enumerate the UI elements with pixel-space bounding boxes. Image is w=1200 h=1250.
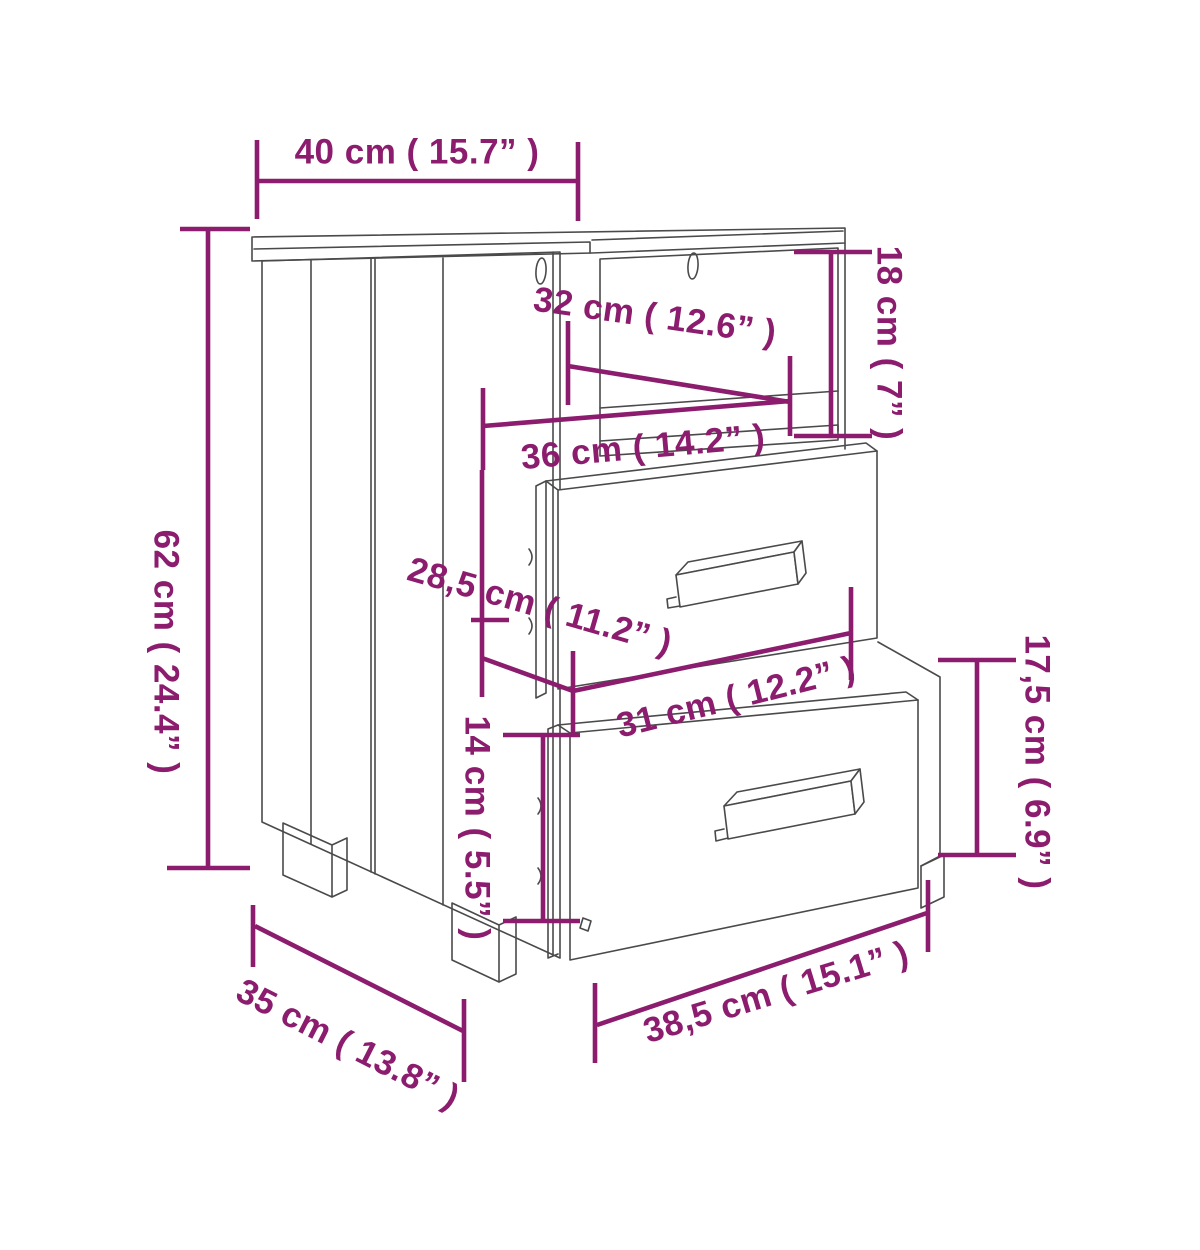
dimension-shelf-width: 36 cm ( 14.2” ) <box>483 388 790 477</box>
dimension-niche-height: 18 cm ( 7” ) <box>794 246 909 441</box>
lower-drawer <box>538 692 918 960</box>
dimension-shelf-width-label: 36 cm ( 14.2” ) <box>519 417 766 477</box>
dimension-overall-height-label: 62 cm ( 24.4” ) <box>147 530 186 775</box>
dimension-leg-height: 14 cm ( 5.5” ) <box>458 716 581 941</box>
dimension-depth: 35 cm ( 13.8” ) <box>230 905 466 1117</box>
top-panel-outline <box>252 228 845 261</box>
lower-drawer-grain-marks <box>538 798 541 884</box>
rear-left-leg <box>283 823 347 897</box>
dimension-lines <box>503 735 580 921</box>
dimension-drawer-front-height-label: 17,5 cm ( 6.9” ) <box>1018 634 1057 889</box>
dimension-overall-height: 62 cm ( 24.4” ) <box>147 229 251 868</box>
dimension-annotations: 40 cm ( 15.7” ) 18 cm ( 7” ) 32 cm ( 12.… <box>147 133 1057 1117</box>
keyhole-slot-right <box>687 253 699 280</box>
dimension-leg-height-label: 14 cm ( 5.5” ) <box>458 716 497 941</box>
cabinet-top-panel <box>252 228 845 261</box>
bedside-cabinet-dimension-diagram: 40 cm ( 15.7” ) 18 cm ( 7” ) 32 cm ( 12.… <box>0 0 1200 1250</box>
dimension-front-width-label: 38,5 cm ( 15.1” ) <box>639 933 913 1051</box>
dimension-top-width-label: 40 cm ( 15.7” ) <box>295 133 540 172</box>
dimension-niche-height-label: 18 cm ( 7” ) <box>870 246 909 441</box>
dimension-top-width: 40 cm ( 15.7” ) <box>257 133 578 222</box>
dimension-depth-label: 35 cm ( 13.8” ) <box>230 971 466 1117</box>
dimension-lines <box>938 660 1016 855</box>
dimension-lines <box>794 252 872 436</box>
rear-right-leg <box>921 855 944 908</box>
dimension-diagram-page: 40 cm ( 15.7” ) 18 cm ( 7” ) 32 cm ( 12.… <box>0 0 1200 1250</box>
top-panel-edge-lines <box>254 231 843 253</box>
niche-opening <box>600 243 845 449</box>
dimension-drawer-front-height: 17,5 cm ( 6.9” ) <box>938 634 1057 889</box>
